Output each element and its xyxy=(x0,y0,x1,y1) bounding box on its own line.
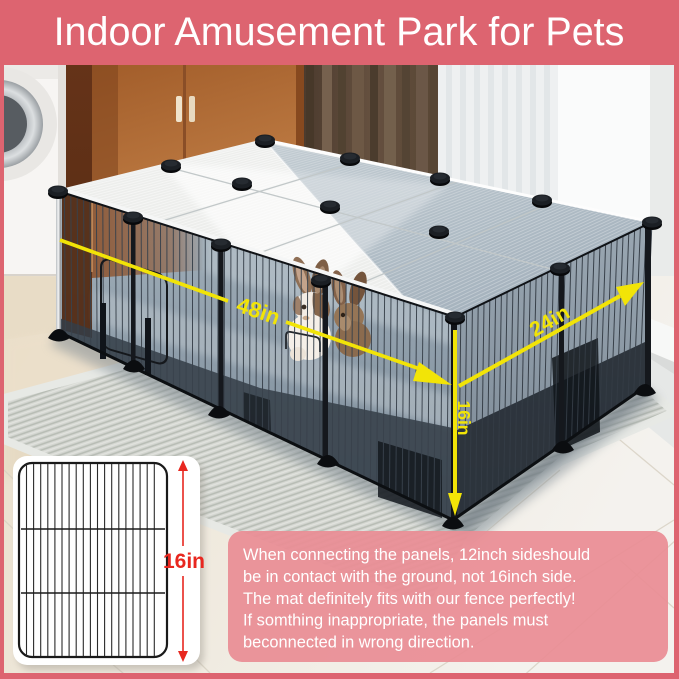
svg-text:When connecting the panels, 12: When connecting the panels, 12inch sides… xyxy=(243,546,590,564)
svg-text:16in: 16in xyxy=(163,550,205,573)
svg-text:be in contact with the ground,: be in contact with the ground, not 16inc… xyxy=(243,568,577,586)
svg-text:The mat definitely fits with o: The mat definitely fits with our fence p… xyxy=(243,590,576,608)
svg-text:If somthing inappropriate, the: If somthing inappropriate, the panels mu… xyxy=(243,612,549,630)
svg-text:beconnected in wrong direction: beconnected in wrong direction. xyxy=(243,634,474,652)
svg-text:Indoor Amusement Park for Pets: Indoor Amusement Park for Pets xyxy=(54,10,625,54)
svg-text:16in: 16in xyxy=(454,400,474,435)
